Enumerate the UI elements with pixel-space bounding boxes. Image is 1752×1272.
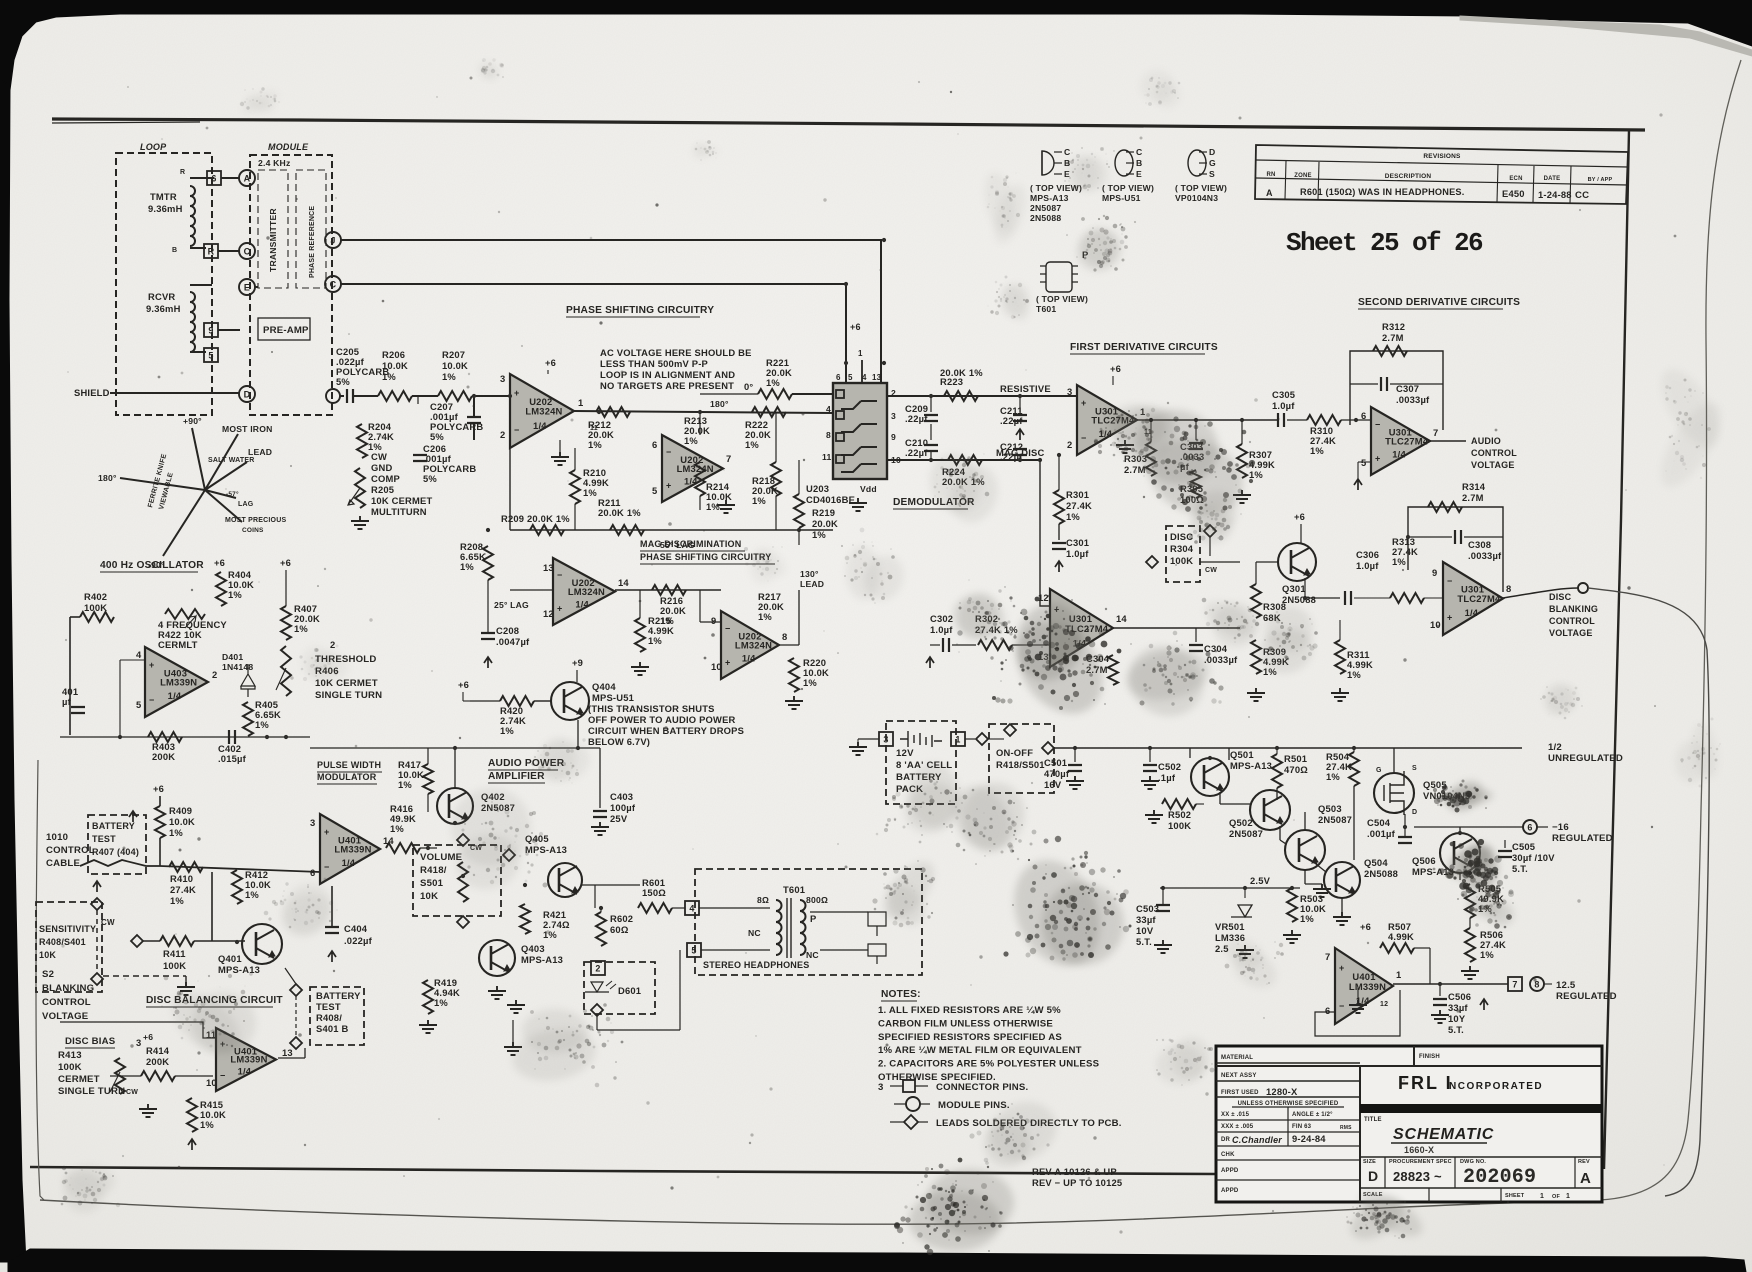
svg-text:LAG: LAG xyxy=(238,501,254,508)
svg-text:NC: NC xyxy=(748,928,761,938)
svg-text:NOTES:: NOTES: xyxy=(881,989,921,1000)
svg-text:1%: 1% xyxy=(1066,511,1080,522)
svg-text:A: A xyxy=(1266,188,1273,198)
svg-text:CW: CW xyxy=(126,1089,138,1096)
svg-text:1%: 1% xyxy=(583,487,597,498)
svg-text:R209 20.0K 1%: R209 20.0K 1% xyxy=(501,513,570,524)
svg-text:8Ω: 8Ω xyxy=(757,895,769,905)
svg-text:REVISIONS: REVISIONS xyxy=(1423,153,1461,160)
svg-text:1%: 1% xyxy=(1326,771,1340,782)
svg-text:LESS THAN 500mV P-P: LESS THAN 500mV P-P xyxy=(600,358,708,369)
svg-text:DISC: DISC xyxy=(1549,592,1572,602)
svg-text:MPS-A13: MPS-A13 xyxy=(525,844,567,855)
svg-text:1/4: 1/4 xyxy=(742,652,756,663)
svg-text:S: S xyxy=(1412,765,1417,772)
svg-text:6: 6 xyxy=(836,373,841,382)
svg-text:−: − xyxy=(1447,576,1452,586)
svg-text:C.Chandler: C.Chandler xyxy=(1232,1135,1282,1145)
svg-text:−: − xyxy=(149,695,154,705)
svg-text:C307: C307 xyxy=(1396,383,1419,394)
svg-text:SINGLE TURN: SINGLE TURN xyxy=(315,690,382,701)
svg-text:DWG NO.: DWG NO. xyxy=(1460,1159,1486,1165)
svg-text:R409: R409 xyxy=(169,805,192,816)
svg-text:.22µf: .22µf xyxy=(905,413,928,424)
svg-text:−: − xyxy=(666,447,671,457)
svg-text:1%: 1% xyxy=(1392,556,1406,567)
svg-text:AC VOLTAGE HERE SHOULD BE: AC VOLTAGE HERE SHOULD BE xyxy=(600,347,752,358)
svg-text:25° LAG: 25° LAG xyxy=(494,600,529,610)
svg-text:RMS: RMS xyxy=(1340,1125,1352,1131)
svg-text:1% ARE ¼W METAL FILM OR EQUIV: 1% ARE ¼W METAL FILM OR EQUIVALENT xyxy=(878,1045,1082,1056)
svg-text:LM339N: LM339N xyxy=(160,677,197,688)
svg-text:9: 9 xyxy=(711,615,716,626)
svg-text:1: 1 xyxy=(1566,1193,1570,1200)
svg-text:VOLTAGE: VOLTAGE xyxy=(1549,628,1593,638)
svg-text:1%: 1% xyxy=(588,439,602,450)
svg-text:SHIELD: SHIELD xyxy=(74,387,110,398)
svg-text:5: 5 xyxy=(136,699,141,710)
svg-text:3: 3 xyxy=(136,1037,141,1048)
svg-text:1/4: 1/4 xyxy=(168,690,182,701)
svg-text:6: 6 xyxy=(652,439,657,450)
svg-text:5: 5 xyxy=(208,351,213,361)
svg-text:TITLE: TITLE xyxy=(1364,1117,1382,1123)
svg-text:CONNECTOR PINS.: CONNECTOR PINS. xyxy=(936,1082,1028,1093)
svg-text:+90°: +90° xyxy=(183,416,202,426)
svg-text:PROCUREMENT SPEC: PROCUREMENT SPEC xyxy=(1389,1159,1452,1165)
svg-text:U203: U203 xyxy=(806,483,829,494)
svg-text:+6: +6 xyxy=(1294,511,1305,522)
svg-text:REGULATED: REGULATED xyxy=(1556,991,1617,1002)
svg-text:6: 6 xyxy=(1361,410,1366,421)
svg-text:20.0K: 20.0K xyxy=(812,518,838,529)
svg-text:Q501: Q501 xyxy=(1230,749,1254,760)
svg-text:Vdd: Vdd xyxy=(860,484,877,494)
svg-text:12V: 12V xyxy=(896,748,914,759)
svg-text:1%: 1% xyxy=(1480,949,1494,960)
svg-text:7: 7 xyxy=(1433,427,1438,438)
svg-text:MOST PRECIOUS: MOST PRECIOUS xyxy=(225,517,286,524)
svg-text:P: P xyxy=(810,913,816,924)
svg-text:OF: OF xyxy=(1552,1194,1560,1200)
svg-text:−16: −16 xyxy=(1552,822,1569,833)
svg-text:1%: 1% xyxy=(706,501,720,512)
svg-text:10: 10 xyxy=(711,661,722,672)
svg-text:LEAD: LEAD xyxy=(248,447,272,457)
svg-text:1/4: 1/4 xyxy=(575,599,589,610)
svg-text:9: 9 xyxy=(891,432,896,442)
svg-text:−: − xyxy=(1081,433,1086,443)
svg-text:S: S xyxy=(1209,169,1215,179)
svg-text:2N5088: 2N5088 xyxy=(1364,868,1398,879)
svg-text:TLC27M4: TLC27M4 xyxy=(1457,593,1501,604)
svg-text:-57°: -57° xyxy=(226,490,239,498)
svg-text:−: − xyxy=(324,862,329,872)
svg-text:1%: 1% xyxy=(648,635,662,646)
svg-text:R314: R314 xyxy=(1462,481,1486,492)
svg-text:CD4016BE: CD4016BE xyxy=(806,494,855,505)
svg-text:Q401: Q401 xyxy=(218,953,242,964)
svg-text:100K: 100K xyxy=(1170,555,1193,566)
svg-text:2N5087: 2N5087 xyxy=(1229,828,1263,839)
svg-text:1%: 1% xyxy=(460,561,474,572)
svg-text:1%: 1% xyxy=(382,371,396,382)
svg-text:.22µf: .22µf xyxy=(905,447,928,458)
svg-text:PHASE SHIFTING CIRCUITRY: PHASE SHIFTING CIRCUITRY xyxy=(566,305,714,316)
svg-text:1/4: 1/4 xyxy=(1392,448,1406,459)
svg-text:LEAD: LEAD xyxy=(800,579,824,589)
svg-text:+6: +6 xyxy=(280,557,291,568)
svg-text:MODULE: MODULE xyxy=(268,142,309,152)
svg-text:7: 7 xyxy=(1512,980,1517,990)
svg-text:1%: 1% xyxy=(684,435,698,446)
svg-text:STEREO HEADPHONES: STEREO HEADPHONES xyxy=(703,960,809,970)
svg-text:C503: C503 xyxy=(1136,903,1159,914)
svg-text:REGULATED: REGULATED xyxy=(1552,833,1613,844)
svg-text:COINS: COINS xyxy=(242,527,264,534)
svg-text:−: − xyxy=(1375,419,1380,429)
svg-text:.0047µf: .0047µf xyxy=(496,636,530,647)
svg-text:RN: RN xyxy=(1266,172,1275,178)
svg-text:1/4: 1/4 xyxy=(533,420,547,431)
svg-text:.0033µf: .0033µf xyxy=(1396,394,1430,405)
svg-text:C: C xyxy=(1064,147,1070,157)
svg-text:SHEET: SHEET xyxy=(1505,1193,1525,1199)
svg-text:2: 2 xyxy=(212,669,217,680)
svg-text:T601: T601 xyxy=(783,884,805,895)
svg-text:OFF POWER TO AUDIO POWER: OFF POWER TO AUDIO POWER xyxy=(588,714,736,725)
svg-text:PULSE WIDTH: PULSE WIDTH xyxy=(317,760,381,770)
svg-text:9: 9 xyxy=(1432,567,1437,578)
svg-text:A: A xyxy=(244,174,251,184)
svg-text:12: 12 xyxy=(543,608,554,619)
svg-text:S401 B: S401 B xyxy=(316,1023,348,1034)
svg-text:R501: R501 xyxy=(1284,753,1307,764)
svg-text:FRL I: FRL I xyxy=(1398,1073,1453,1093)
svg-text:CHK: CHK xyxy=(1221,1152,1235,1158)
svg-text:R602: R602 xyxy=(610,913,633,924)
svg-text:MPS-A13: MPS-A13 xyxy=(521,954,563,965)
svg-text:NO TARGETS ARE PRESENT: NO TARGETS ARE PRESENT xyxy=(600,380,734,391)
svg-text:DISC BIAS: DISC BIAS xyxy=(65,1036,116,1047)
svg-text:1: 1 xyxy=(955,735,960,745)
svg-text:SIZE: SIZE xyxy=(1363,1159,1376,1165)
svg-text:D601: D601 xyxy=(618,985,641,996)
svg-text:REV − UP TO 10125: REV − UP TO 10125 xyxy=(1032,1177,1122,1188)
svg-text:GND: GND xyxy=(371,462,392,473)
svg-text:RESISTIVE: RESISTIVE xyxy=(1000,383,1051,394)
svg-text:LM324N: LM324N xyxy=(735,639,772,650)
svg-text:10: 10 xyxy=(1430,619,1441,630)
svg-text:1%: 1% xyxy=(758,611,772,622)
svg-text:SECOND DERIVATIVE CIRCUITS: SECOND DERIVATIVE CIRCUITS xyxy=(1358,297,1520,308)
svg-text:16V: 16V xyxy=(1044,779,1062,790)
svg-text:FIN 63: FIN 63 xyxy=(1292,1124,1312,1130)
svg-text:R411: R411 xyxy=(163,948,186,959)
svg-text:13: 13 xyxy=(543,562,554,573)
svg-text:3: 3 xyxy=(878,1082,884,1093)
svg-text:CERMET: CERMET xyxy=(58,1074,100,1085)
svg-text:6: 6 xyxy=(211,174,216,184)
svg-text:27.4K: 27.4K xyxy=(170,884,196,895)
svg-text:5%: 5% xyxy=(336,376,350,387)
svg-text:Sheet 25 of 26: Sheet 25 of 26 xyxy=(1286,228,1483,258)
svg-text:2N5087: 2N5087 xyxy=(1030,203,1061,213)
svg-text:400 Hz OSCILLATOR: 400 Hz OSCILLATOR xyxy=(100,560,204,571)
svg-text:XXX ± .005: XXX ± .005 xyxy=(1221,1124,1254,1130)
svg-text:6: 6 xyxy=(1527,823,1532,833)
svg-text:C506: C506 xyxy=(1448,991,1471,1002)
svg-text:1%: 1% xyxy=(398,779,412,790)
svg-text:J: J xyxy=(330,236,335,246)
svg-text:TEST: TEST xyxy=(316,1001,341,1012)
svg-text:CW: CW xyxy=(1205,567,1217,574)
svg-text:1%: 1% xyxy=(812,529,826,540)
svg-text:CARBON FILM UNLESS OTHERWISE: CARBON FILM UNLESS OTHERWISE xyxy=(878,1018,1053,1029)
svg-text:REV: REV xyxy=(1578,1159,1590,1165)
svg-text:7: 7 xyxy=(1325,951,1330,962)
svg-text:LOOP: LOOP xyxy=(140,142,167,152)
svg-text:G: G xyxy=(1376,767,1382,774)
svg-text:LOOP IS IN ALIGNMENT AND: LOOP IS IN ALIGNMENT AND xyxy=(600,369,735,380)
svg-text:1/2: 1/2 xyxy=(1548,742,1562,753)
svg-text:Q504: Q504 xyxy=(1364,857,1388,868)
svg-text:1%: 1% xyxy=(1300,913,1314,924)
svg-text:TMTR: TMTR xyxy=(150,191,177,202)
svg-text:4: 4 xyxy=(689,904,694,914)
svg-text:2N5088: 2N5088 xyxy=(1282,594,1316,605)
svg-text:VP0104N3: VP0104N3 xyxy=(1175,193,1218,203)
svg-text:4.99K: 4.99K xyxy=(1388,931,1414,942)
svg-text:B: B xyxy=(172,247,177,254)
svg-text:5%: 5% xyxy=(430,431,444,442)
svg-text:+: + xyxy=(1081,398,1086,408)
svg-text:MODULATOR: MODULATOR xyxy=(317,772,377,782)
svg-text:28823 ~: 28823 ~ xyxy=(1393,1169,1442,1184)
svg-text:B: B xyxy=(1136,158,1142,168)
svg-text:R206: R206 xyxy=(382,349,405,360)
svg-text:MODULE PINS.: MODULE PINS. xyxy=(938,1100,1010,1111)
svg-text:1660-X: 1660-X xyxy=(1404,1145,1434,1155)
svg-text:130°: 130° xyxy=(800,569,819,579)
svg-text:CONTROL: CONTROL xyxy=(1549,616,1595,626)
svg-text:Q404: Q404 xyxy=(592,681,616,692)
svg-text:10: 10 xyxy=(206,1077,217,1088)
svg-text:1%: 1% xyxy=(660,615,674,626)
svg-text:SALT WATER: SALT WATER xyxy=(208,457,254,464)
svg-text:R304: R304 xyxy=(1170,543,1194,554)
svg-text:D: D xyxy=(1368,1168,1378,1184)
svg-text:R410: R410 xyxy=(170,873,193,884)
svg-text:3: 3 xyxy=(310,817,315,828)
svg-text:14: 14 xyxy=(1116,613,1127,624)
svg-text:100K: 100K xyxy=(1168,820,1191,831)
svg-text:10K: 10K xyxy=(420,891,438,902)
svg-text:NC: NC xyxy=(806,950,819,960)
svg-text:PRE-AMP: PRE-AMP xyxy=(263,325,309,336)
svg-text:13: 13 xyxy=(282,1047,293,1058)
svg-text:LM339N: LM339N xyxy=(230,1054,267,1065)
svg-text:AMPLIFIER: AMPLIFIER xyxy=(488,771,545,782)
svg-text:+6: +6 xyxy=(143,1032,153,1042)
svg-text:100K: 100K xyxy=(163,960,186,971)
svg-text:9: 9 xyxy=(208,326,213,336)
svg-text:BATTERY: BATTERY xyxy=(316,990,361,1001)
svg-text:R407 (404): R407 (404) xyxy=(92,847,139,857)
svg-text:1%: 1% xyxy=(228,589,242,600)
svg-text:TRANSMITTER: TRANSMITTER xyxy=(268,208,278,272)
svg-text:20.0K 1%: 20.0K 1% xyxy=(940,367,983,378)
svg-text:( TOP VIEW): ( TOP VIEW) xyxy=(1036,294,1088,304)
svg-text:+: + xyxy=(324,827,329,837)
svg-text:R418/: R418/ xyxy=(420,865,447,876)
svg-text:2.7M: 2.7M xyxy=(1382,332,1404,343)
svg-text:+: + xyxy=(1339,963,1344,973)
svg-text:MATERIAL: MATERIAL xyxy=(1221,1055,1253,1061)
svg-text:5.T.: 5.T. xyxy=(1512,863,1528,874)
svg-text:+6: +6 xyxy=(545,357,556,368)
svg-text:5.T.: 5.T. xyxy=(1136,936,1152,947)
svg-text:NEXT ASSY: NEXT ASSY xyxy=(1221,1073,1257,1079)
svg-text:ON-OFF: ON-OFF xyxy=(996,747,1033,758)
svg-text:E: E xyxy=(1136,169,1142,179)
svg-text:(THIS TRANSISTOR SHUTS: (THIS TRANSISTOR SHUTS xyxy=(588,703,715,714)
svg-text:2N5087: 2N5087 xyxy=(1318,814,1352,825)
svg-text:1%: 1% xyxy=(1347,669,1361,680)
svg-text:+: + xyxy=(557,604,562,614)
svg-text:5.T.: 5.T. xyxy=(1448,1024,1464,1035)
svg-text:−: − xyxy=(1339,1001,1344,1011)
svg-text:( TOP VIEW): ( TOP VIEW) xyxy=(1102,183,1154,193)
svg-text:C301: C301 xyxy=(1066,537,1089,548)
svg-text:2. CAPACITORS ARE 5% POLYEST: 2. CAPACITORS ARE 5% POLYESTER UNLESS xyxy=(878,1059,1100,1070)
svg-text:BELOW 6.7V): BELOW 6.7V) xyxy=(588,736,650,747)
svg-text:µf: µf xyxy=(62,696,72,707)
svg-text:1%: 1% xyxy=(766,377,780,388)
svg-text:33µf: 33µf xyxy=(1136,914,1156,925)
svg-text:R413: R413 xyxy=(58,1050,82,1061)
svg-text:R601 (150Ω) WAS IN HEADPHONES.: R601 (150Ω) WAS IN HEADPHONES. xyxy=(1300,187,1465,197)
svg-text:1%: 1% xyxy=(390,823,404,834)
svg-text:R205: R205 xyxy=(371,484,394,495)
svg-text:SINGLE TURN: SINGLE TURN xyxy=(58,1086,125,1097)
svg-text:VOLTAGE: VOLTAGE xyxy=(42,1011,89,1022)
svg-text:BATTERY: BATTERY xyxy=(92,821,135,831)
svg-text:1%: 1% xyxy=(543,929,557,940)
svg-text:470µf: 470µf xyxy=(1044,768,1070,779)
svg-text:.015µf: .015µf xyxy=(218,753,247,764)
svg-text:+: + xyxy=(1375,453,1380,463)
svg-text:1%: 1% xyxy=(169,827,183,838)
svg-text:10K CERMET: 10K CERMET xyxy=(371,495,432,506)
svg-text:1/4: 1/4 xyxy=(342,857,356,868)
svg-text:TEST: TEST xyxy=(92,834,116,844)
svg-text:FIRST USED: FIRST USED xyxy=(1221,1090,1259,1096)
svg-text:.1µf: .1µf xyxy=(1158,772,1176,783)
svg-text:C505: C505 xyxy=(1512,841,1535,852)
svg-text:60Ω: 60Ω xyxy=(610,924,629,935)
svg-text:202069: 202069 xyxy=(1463,1166,1536,1189)
svg-text:+9: +9 xyxy=(572,657,583,668)
svg-text:BLANKING: BLANKING xyxy=(42,983,94,994)
svg-text:ANGLE ± 1/2°: ANGLE ± 1/2° xyxy=(1292,1112,1333,1118)
svg-text:REV A 10126 & UP: REV A 10126 & UP xyxy=(1032,1166,1117,1177)
svg-text:200K: 200K xyxy=(146,1056,169,1067)
svg-text:+: + xyxy=(666,481,671,491)
svg-text:Q403: Q403 xyxy=(521,943,545,954)
svg-text:MPS-U51: MPS-U51 xyxy=(1102,193,1141,203)
svg-text:D: D xyxy=(1412,809,1417,816)
svg-text:+6: +6 xyxy=(850,322,861,332)
svg-text:10.0K: 10.0K xyxy=(382,360,408,371)
svg-text:R: R xyxy=(180,169,185,176)
svg-text:7: 7 xyxy=(726,453,731,464)
svg-text:1.0µf: 1.0µf xyxy=(1066,548,1089,559)
svg-text:8: 8 xyxy=(826,430,831,440)
svg-text:Q506: Q506 xyxy=(1412,855,1436,866)
svg-text:( TOP VIEW): ( TOP VIEW) xyxy=(1175,183,1227,193)
svg-text:DATE: DATE xyxy=(1544,176,1561,182)
svg-text:LM339N: LM339N xyxy=(334,844,371,855)
svg-text:27.4K: 27.4K xyxy=(1066,500,1092,511)
svg-text:COMP: COMP xyxy=(371,473,400,484)
svg-text:Q502: Q502 xyxy=(1229,817,1253,828)
svg-text:CC: CC xyxy=(1575,190,1589,201)
svg-text:1%: 1% xyxy=(294,623,308,634)
svg-text:C: C xyxy=(330,280,337,290)
svg-text:2: 2 xyxy=(330,639,335,650)
svg-text:MOST IRON: MOST IRON xyxy=(222,424,273,434)
svg-text:NCORPORATED: NCORPORATED xyxy=(1449,1081,1543,1092)
svg-text:C208: C208 xyxy=(496,625,519,636)
svg-text:10V: 10V xyxy=(1136,925,1154,936)
svg-text:1%: 1% xyxy=(1310,445,1324,456)
svg-text:VOLTAGE: VOLTAGE xyxy=(1471,460,1515,470)
svg-text:D: D xyxy=(244,390,251,400)
svg-text:MPS-U51: MPS-U51 xyxy=(592,692,634,703)
svg-text:1: 1 xyxy=(1396,969,1401,980)
svg-text:DR: DR xyxy=(1221,1137,1231,1143)
svg-text:1%: 1% xyxy=(803,677,817,688)
svg-text:C305: C305 xyxy=(1272,389,1295,400)
svg-text:14: 14 xyxy=(618,577,629,588)
svg-text:1: 1 xyxy=(1540,1193,1544,1200)
svg-text:.022µf: .022µf xyxy=(344,935,373,946)
svg-text:−: − xyxy=(220,1070,225,1080)
svg-text:C: C xyxy=(244,247,251,257)
svg-text:12: 12 xyxy=(1380,1001,1388,1008)
svg-text:ECN: ECN xyxy=(1509,176,1522,182)
svg-text:100K: 100K xyxy=(58,1062,82,1073)
svg-text:Q301: Q301 xyxy=(1282,583,1306,594)
svg-text:R402: R402 xyxy=(84,591,107,602)
svg-text:AUDIO: AUDIO xyxy=(1471,436,1501,446)
svg-text:CW: CW xyxy=(101,918,115,927)
svg-text:800Ω: 800Ω xyxy=(806,895,828,905)
svg-text:180°: 180° xyxy=(710,399,729,409)
svg-text:TLC27M4: TLC27M4 xyxy=(1385,435,1429,446)
svg-text:−: − xyxy=(725,623,730,633)
svg-text:MPS-A13: MPS-A13 xyxy=(1030,193,1069,203)
svg-text:1%: 1% xyxy=(255,719,269,730)
svg-text:MULTITURN: MULTITURN xyxy=(371,506,427,517)
svg-text:25V: 25V xyxy=(610,813,628,824)
svg-text:D: D xyxy=(1209,147,1215,157)
svg-text:MPS-A13: MPS-A13 xyxy=(1230,760,1272,771)
svg-text:R418/S501: R418/S501 xyxy=(996,759,1045,770)
svg-text:1: 1 xyxy=(858,349,863,358)
svg-text:200K: 200K xyxy=(152,751,175,762)
